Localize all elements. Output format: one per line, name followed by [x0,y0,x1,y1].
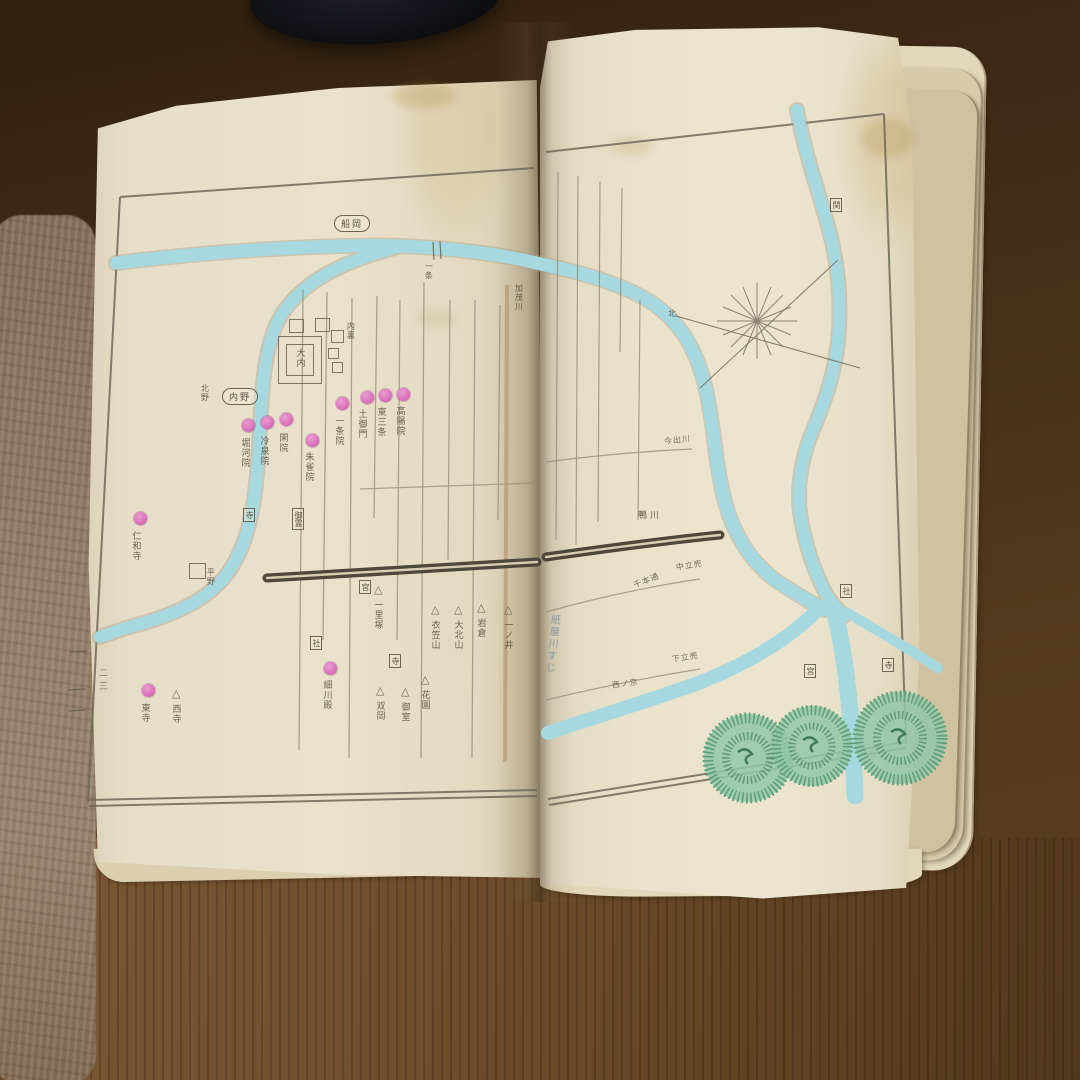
hill-marker-triangle: △ [454,604,462,615]
building-square [189,563,206,579]
site-marker-circle [142,684,155,697]
hill-marker-triangle: △ [376,685,384,696]
compass-label: 北 [668,308,676,319]
hill-marker-triangle: △ [172,688,180,699]
shrine-box-label: 寺 [243,508,255,522]
site-marker-circle [306,434,319,447]
hill-marker-triangle: △ [477,602,485,613]
place-label: 内裏 [346,322,354,340]
site-label: 冷泉院 [258,436,267,466]
site-label: 朱雀院 [303,452,312,482]
building-square [328,348,339,359]
building-square [289,319,304,333]
paper-stain [392,84,456,108]
hill-label: 一ノ井 [502,620,511,650]
worn-table-left-edge [0,215,96,1080]
place-label: 平野 [206,568,214,586]
site-marker-circle [261,416,274,429]
hill-marker-triangle: △ [401,686,409,697]
shrine-box-label: 社 [840,584,852,598]
building-square [332,362,343,373]
hill-label: 岩倉 [475,618,484,638]
hill-label: 御室 [399,702,408,722]
site-marker-circle [379,389,392,402]
shrine-box-label: 寺 [882,658,894,672]
paper-stain [610,136,654,156]
page-edge-number: 二三 [96,668,109,694]
paper-stain [415,310,455,328]
site-marker-circle [361,391,374,404]
shrine-box-label: 宮 [359,580,371,594]
hill-marker-triangle: △ [421,674,429,685]
cartouche-label: 船岡 [334,215,370,232]
hill-label: 双岡 [374,701,383,721]
site-label: 東三条 [375,407,384,437]
site-label: 東寺 [139,703,148,723]
river-name-label: 鴨川 [638,508,662,521]
building-square [331,330,344,343]
site-marker-circle [242,419,255,432]
hill-marker-triangle: △ [431,604,439,615]
hill-marker-triangle: △ [504,604,512,615]
site-label: 仁和寺 [130,531,139,561]
palace-label: 大内 [294,348,303,368]
hill-label: 衣笠山 [429,620,438,650]
site-marker-circle [336,397,349,410]
left-page [84,80,546,886]
photo-scene: 大内 船岡 内野 堀河院 冷泉院 閑院 朱雀院 一条院 土御門 東三条 高陽院 … [0,0,1080,1080]
site-label: 一条院 [333,416,342,446]
shrine-box-label: 関 [830,198,842,212]
shrine-box-label: 社 [310,636,322,650]
shrine-box-label: 宮 [804,664,816,678]
site-marker-circle [134,512,147,525]
site-label: 高陽院 [394,406,403,436]
place-label: 一条 [424,262,432,280]
building-square [315,318,330,332]
site-label: 土御門 [356,409,365,439]
shrine-box-label: 寺 [389,654,401,668]
site-marker-circle [397,388,410,401]
site-label: 細川殿 [321,680,330,710]
shrine-box-label: 御霊 [292,508,304,530]
cartouche-label: 内野 [222,388,258,405]
hill-label: 花園 [419,690,428,710]
site-label: 閑院 [277,433,286,453]
paper-stain [862,118,914,158]
site-marker-circle [324,662,337,675]
right-page [524,22,922,902]
site-label: 堀河院 [239,438,248,468]
hill-label: 一里塚 [372,600,381,630]
site-marker-circle [280,413,293,426]
hill-label: 大北山 [452,620,461,650]
place-label: 加茂川 [514,284,522,311]
hill-marker-triangle: △ [374,584,382,595]
hill-label: 西寺 [170,704,179,724]
place-label: 北野 [200,384,208,402]
